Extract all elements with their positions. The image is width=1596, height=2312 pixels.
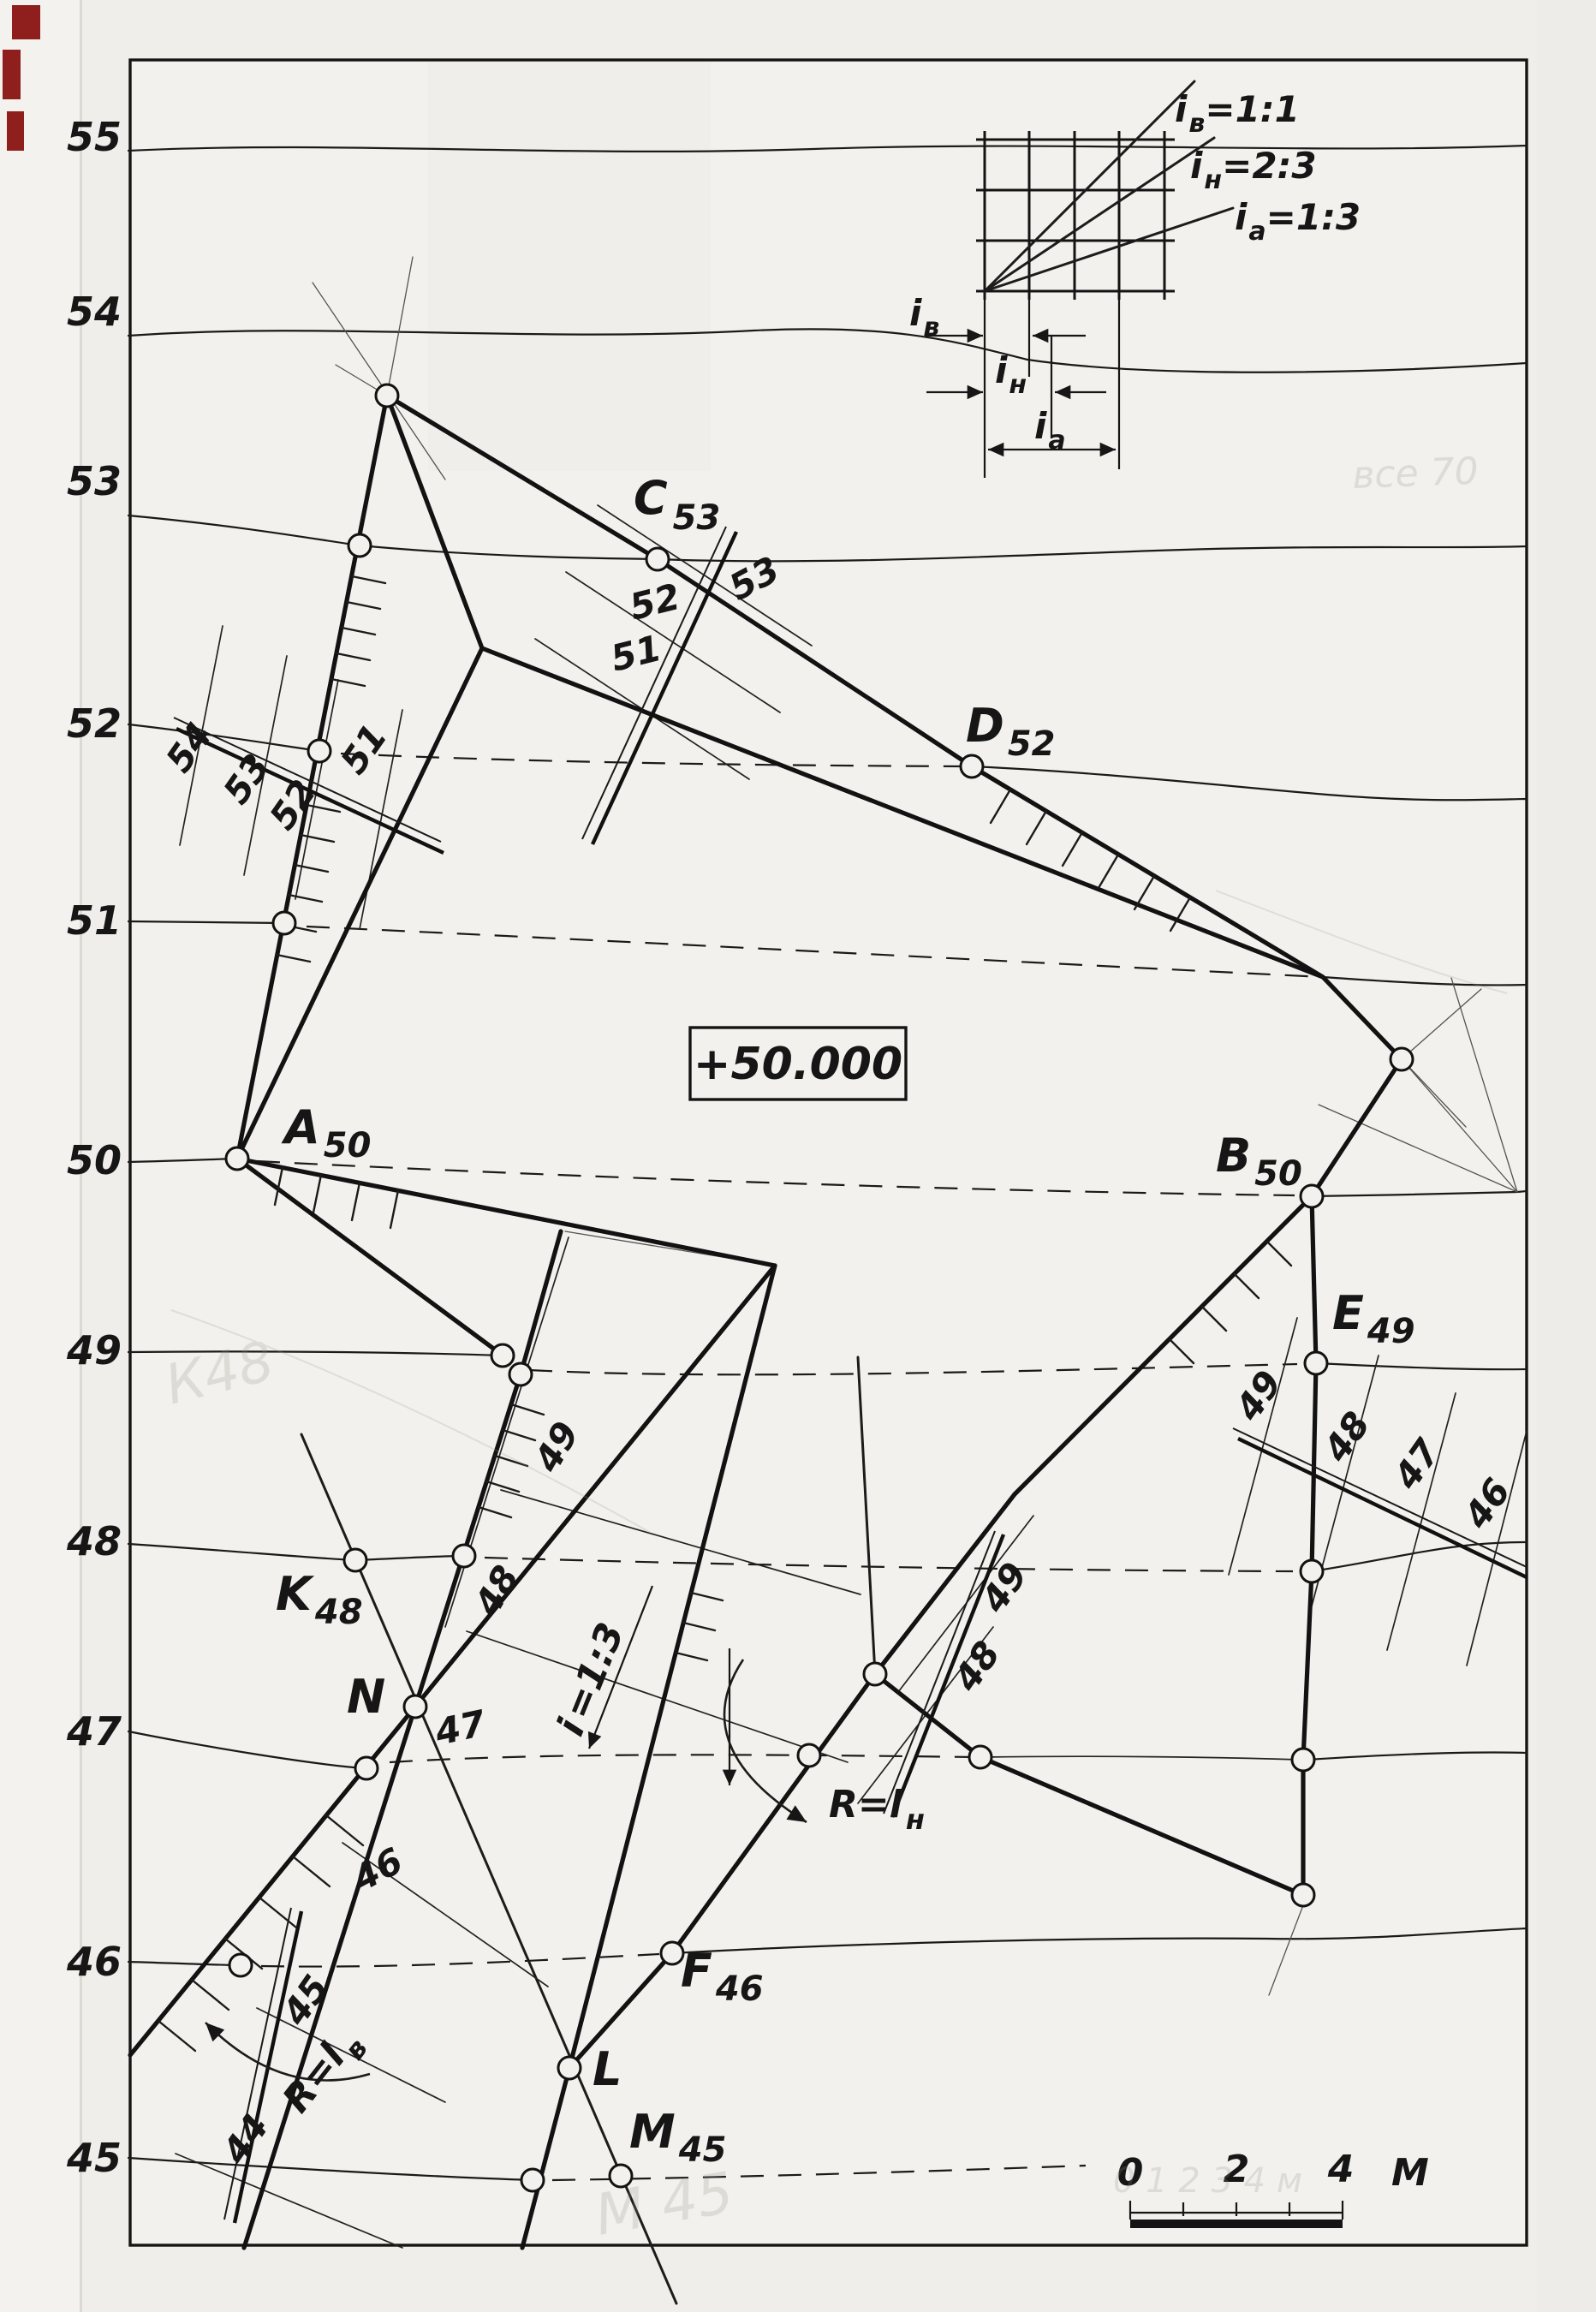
red-mark-2: [3, 50, 21, 99]
scanned-drawing-sheet: +50.000 55 54 53 52 51 50 49 48 47 46 45…: [0, 0, 1596, 2312]
axis-45: 45: [66, 2135, 122, 2181]
grading-plan-drawing: +50.000 55 54 53 52 51 50 49 48 47 46 45…: [0, 0, 1596, 2312]
point-K: [344, 1549, 366, 1571]
point-D: [961, 755, 983, 778]
point-top-vertex: [376, 384, 398, 407]
point-N: [404, 1695, 426, 1718]
point-C: [646, 548, 669, 570]
point-L: [558, 2057, 581, 2079]
axis-50: 50: [67, 1137, 122, 1183]
axis-55: 55: [67, 114, 122, 160]
svg-text:все 70: все 70: [1352, 450, 1480, 498]
axis-48: 48: [66, 1518, 122, 1564]
label-N: N: [347, 1670, 385, 1724]
axis-51: 51: [67, 897, 122, 944]
axis-54: 54: [67, 289, 122, 335]
axis-52: 52: [67, 700, 122, 747]
point-A: [226, 1147, 248, 1170]
platform-elevation: +50.000: [690, 1028, 906, 1099]
scale-unit: М: [1391, 2151, 1429, 2195]
axis-49: 49: [66, 1327, 122, 1373]
red-mark-1: [12, 5, 40, 39]
scale-4: 4: [1327, 2148, 1355, 2191]
platform-elevation-label: +50.000: [694, 1039, 902, 1090]
label-L: L: [593, 2042, 622, 2096]
point-E: [1305, 1352, 1327, 1374]
svg-text:0 1 2 3 4 м: 0 1 2 3 4 м: [1113, 2161, 1302, 2201]
axis-46: 46: [66, 1939, 122, 1985]
axis-53: 53: [67, 458, 122, 504]
red-mark-3: [7, 111, 24, 151]
point-B: [1301, 1185, 1323, 1207]
axis-47: 47: [66, 1708, 122, 1755]
